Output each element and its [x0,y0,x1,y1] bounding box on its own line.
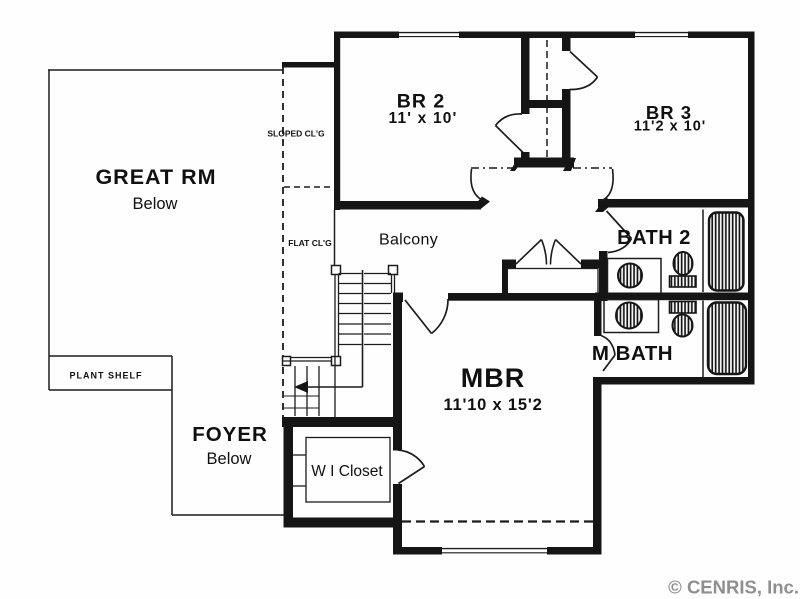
svg-text:Below: Below [133,195,178,213]
svg-text:Below: Below [207,450,252,468]
svg-text:FLAT CL'G: FLAT CL'G [288,238,332,248]
svg-text:M BATH: M BATH [592,342,673,365]
svg-text:GREAT RM: GREAT RM [95,165,216,189]
svg-text:© CENRIS, Inc.: © CENRIS, Inc. [668,577,799,598]
svg-text:PLANT SHELF: PLANT SHELF [70,371,143,381]
svg-text:MBR: MBR [461,363,526,393]
svg-text:SLOPED CL'G: SLOPED CL'G [267,129,325,139]
svg-text:11' x 10': 11' x 10' [388,110,457,127]
svg-text:Balcony: Balcony [379,232,438,249]
svg-text:FOYER: FOYER [192,423,268,446]
svg-text:BATH 2: BATH 2 [617,227,691,249]
svg-text:W I Closet: W I Closet [311,463,383,480]
svg-text:11'10 x 15'2: 11'10 x 15'2 [443,396,542,414]
svg-text:11'2 x 10': 11'2 x 10' [634,119,707,135]
